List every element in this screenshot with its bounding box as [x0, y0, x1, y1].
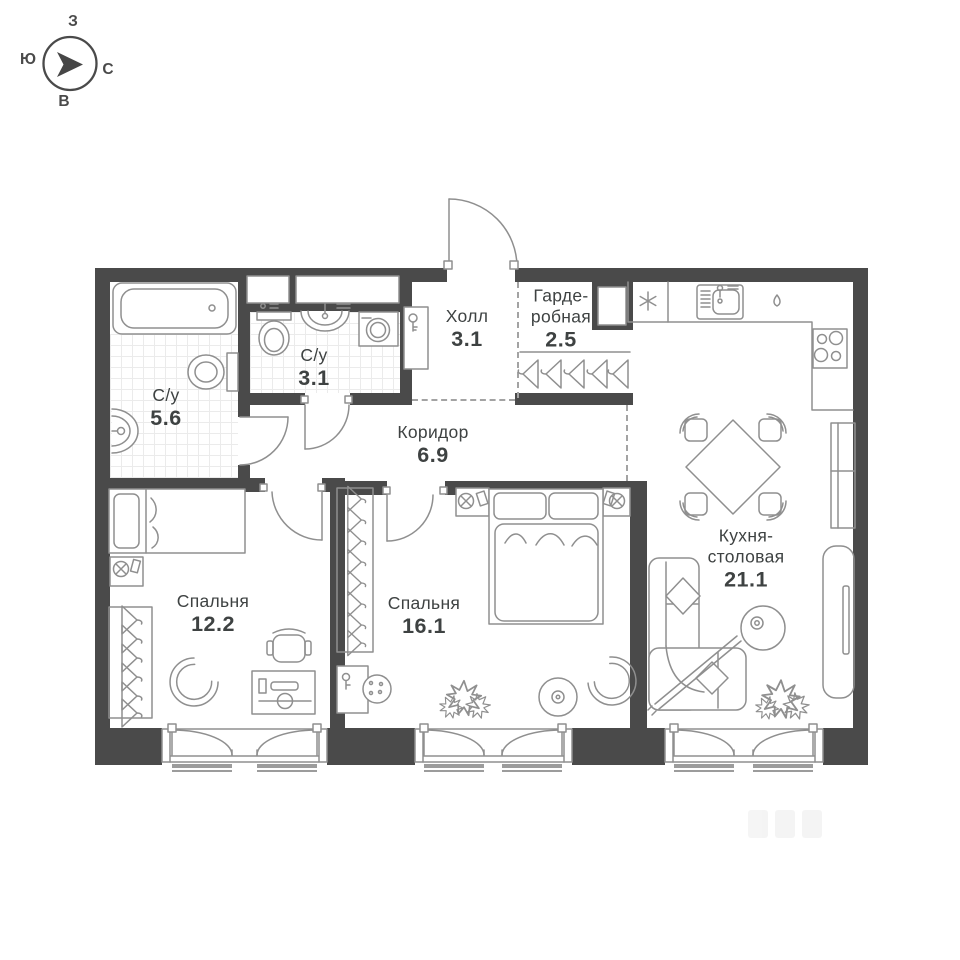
wardrobe-hangers [109, 606, 152, 727]
plant-icon [436, 681, 495, 723]
label-kitchen-dining: Кухня- столовая 21.1 [708, 526, 785, 593]
label-hall: Холл 3.1 [446, 306, 488, 352]
window-kitchen [665, 724, 823, 772]
window-bedroom-2 [415, 724, 572, 772]
plant-icon [752, 680, 814, 724]
wardrobe-hangers [337, 486, 373, 655]
kitchen-sink-icon [697, 285, 743, 319]
pouf-icon [539, 678, 577, 716]
wardrobe-hangers [518, 352, 630, 388]
door-bathroom-small [301, 396, 352, 449]
fridge-icon [640, 292, 656, 310]
hall-console-icon [404, 307, 428, 369]
nightstand-icon [456, 488, 489, 516]
plan-line-art [0, 0, 960, 960]
sideboard-icon [823, 546, 854, 698]
dining-set [680, 414, 786, 520]
bathtub-icon [113, 283, 236, 334]
stove-icon [813, 329, 847, 368]
compass-east-label: В [58, 93, 69, 111]
sink-icon [301, 304, 350, 331]
label-bedroom-2: Спальня 16.1 [388, 593, 460, 639]
label-wardrobe: Гарде- робная 2.5 [531, 286, 591, 353]
washing-machine-icon [359, 312, 398, 346]
compass-south-label: Ю [20, 51, 36, 69]
label-bedroom-1: Спальня 12.2 [177, 591, 249, 637]
entrance-door-icon [444, 199, 518, 269]
nightstand-icon [110, 557, 143, 586]
toilet-icon [257, 304, 291, 355]
sink-icon [112, 409, 138, 453]
cabinet-icon [831, 423, 855, 528]
door-bedroom-2 [383, 487, 447, 541]
label-corridor: Коридор 6.9 [397, 422, 468, 468]
dishwasher-icon [774, 295, 780, 306]
compass-arrow-icon [57, 52, 83, 77]
floor-plan-canvas: З Ю С В [0, 0, 960, 960]
compass-icon: З Ю С В [0, 0, 140, 130]
nightstand-icon [603, 488, 630, 516]
door-bathroom-large [240, 417, 288, 465]
double-bed-icon [489, 489, 603, 624]
single-bed-icon [109, 489, 245, 553]
floor-lamp-icon [741, 606, 785, 650]
desk-icon [252, 671, 315, 714]
armchair-icon [160, 653, 223, 716]
label-bathroom-small: С/у 3.1 [298, 345, 329, 391]
window-bedroom-1 [162, 724, 327, 772]
door-bedroom-1 [260, 484, 325, 540]
label-bathroom-large: С/у 5.6 [150, 385, 181, 431]
office-chair-icon [267, 629, 311, 662]
side-table-icon [363, 675, 391, 703]
compass-west-label: З [68, 13, 78, 31]
compass-north-label: С [102, 61, 113, 79]
toilet-icon [188, 353, 238, 391]
armchair-icon [584, 652, 646, 715]
